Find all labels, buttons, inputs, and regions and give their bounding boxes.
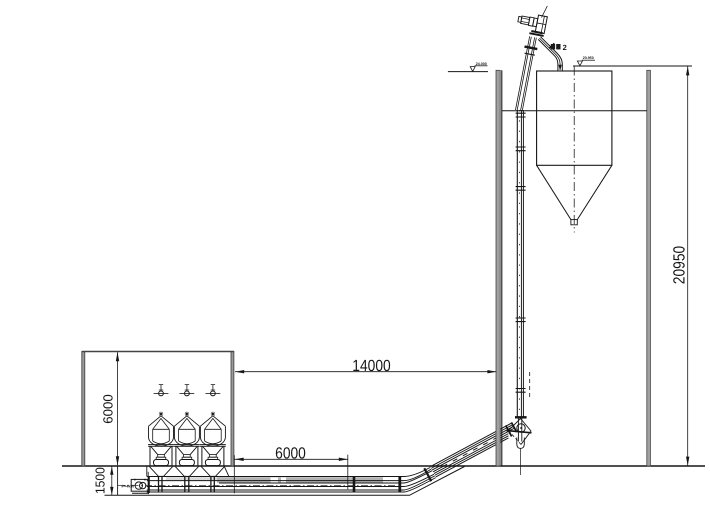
svg-text:1500: 1500	[93, 467, 108, 494]
svg-text:P=4kW: P=4kW	[122, 485, 135, 489]
svg-text:14000: 14000	[352, 357, 390, 375]
svg-text:2: 2	[563, 43, 567, 52]
svg-text:24.000: 24.000	[476, 62, 487, 66]
svg-text:6000: 6000	[101, 394, 116, 424]
svg-text:20.950: 20.950	[583, 56, 594, 60]
svg-text:20950: 20950	[670, 246, 688, 284]
svg-text:6000: 6000	[275, 444, 306, 462]
